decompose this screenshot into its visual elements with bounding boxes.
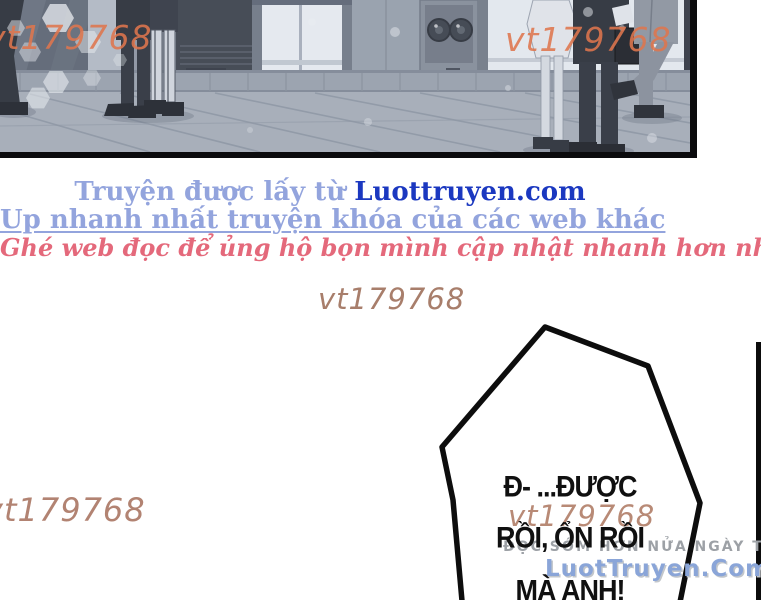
credit-source-site: Luottruyen.com <box>354 177 585 207</box>
credit-line-support: Ghé web đọc để ủng hộ bọn mình cập nhật … <box>0 233 660 262</box>
comic-panel-storefront <box>0 0 697 158</box>
credit-source-prefix: Truyện được lấy từ <box>74 177 354 207</box>
dialogue-line-1: Đ- ...ĐƯỢC <box>440 471 700 504</box>
dialogue-line-3: MÀ ANH! <box>440 575 700 600</box>
watermark-middle: vt179768 <box>318 282 465 316</box>
storefront-scene-art <box>0 0 690 152</box>
haze-overlay <box>0 0 690 152</box>
credit-line-source: Truyện được lấy từ Luottruyen.com <box>0 177 660 207</box>
webtoon-page: vt179768 vt179768 Truyện được lấy từ Luo… <box>0 0 761 600</box>
credit-line-upload: Up nhanh nhất truyện khóa của các web kh… <box>0 205 660 235</box>
dialogue-line-2: RỒI, ỔN RỒI <box>440 522 700 555</box>
watermark-bottom-left: vt179768 <box>0 491 146 529</box>
